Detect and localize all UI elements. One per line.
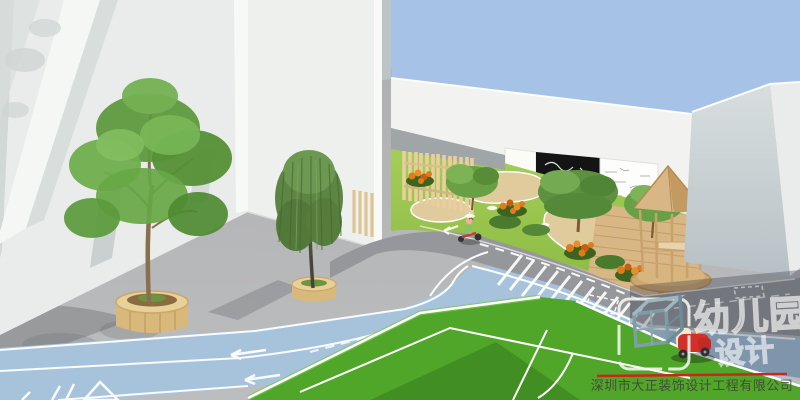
watermark-title: 幼儿园 <box>692 292 800 341</box>
company-name: 深圳市大正装饰设计工程有限公司 <box>591 378 794 394</box>
building-right <box>684 82 800 276</box>
tree-planter <box>116 291 188 333</box>
render-canvas: 幼儿园 设计 深圳市大正装饰设计工程有限公司 <box>0 0 800 400</box>
watermark-subtitle: 设计 <box>714 333 776 371</box>
